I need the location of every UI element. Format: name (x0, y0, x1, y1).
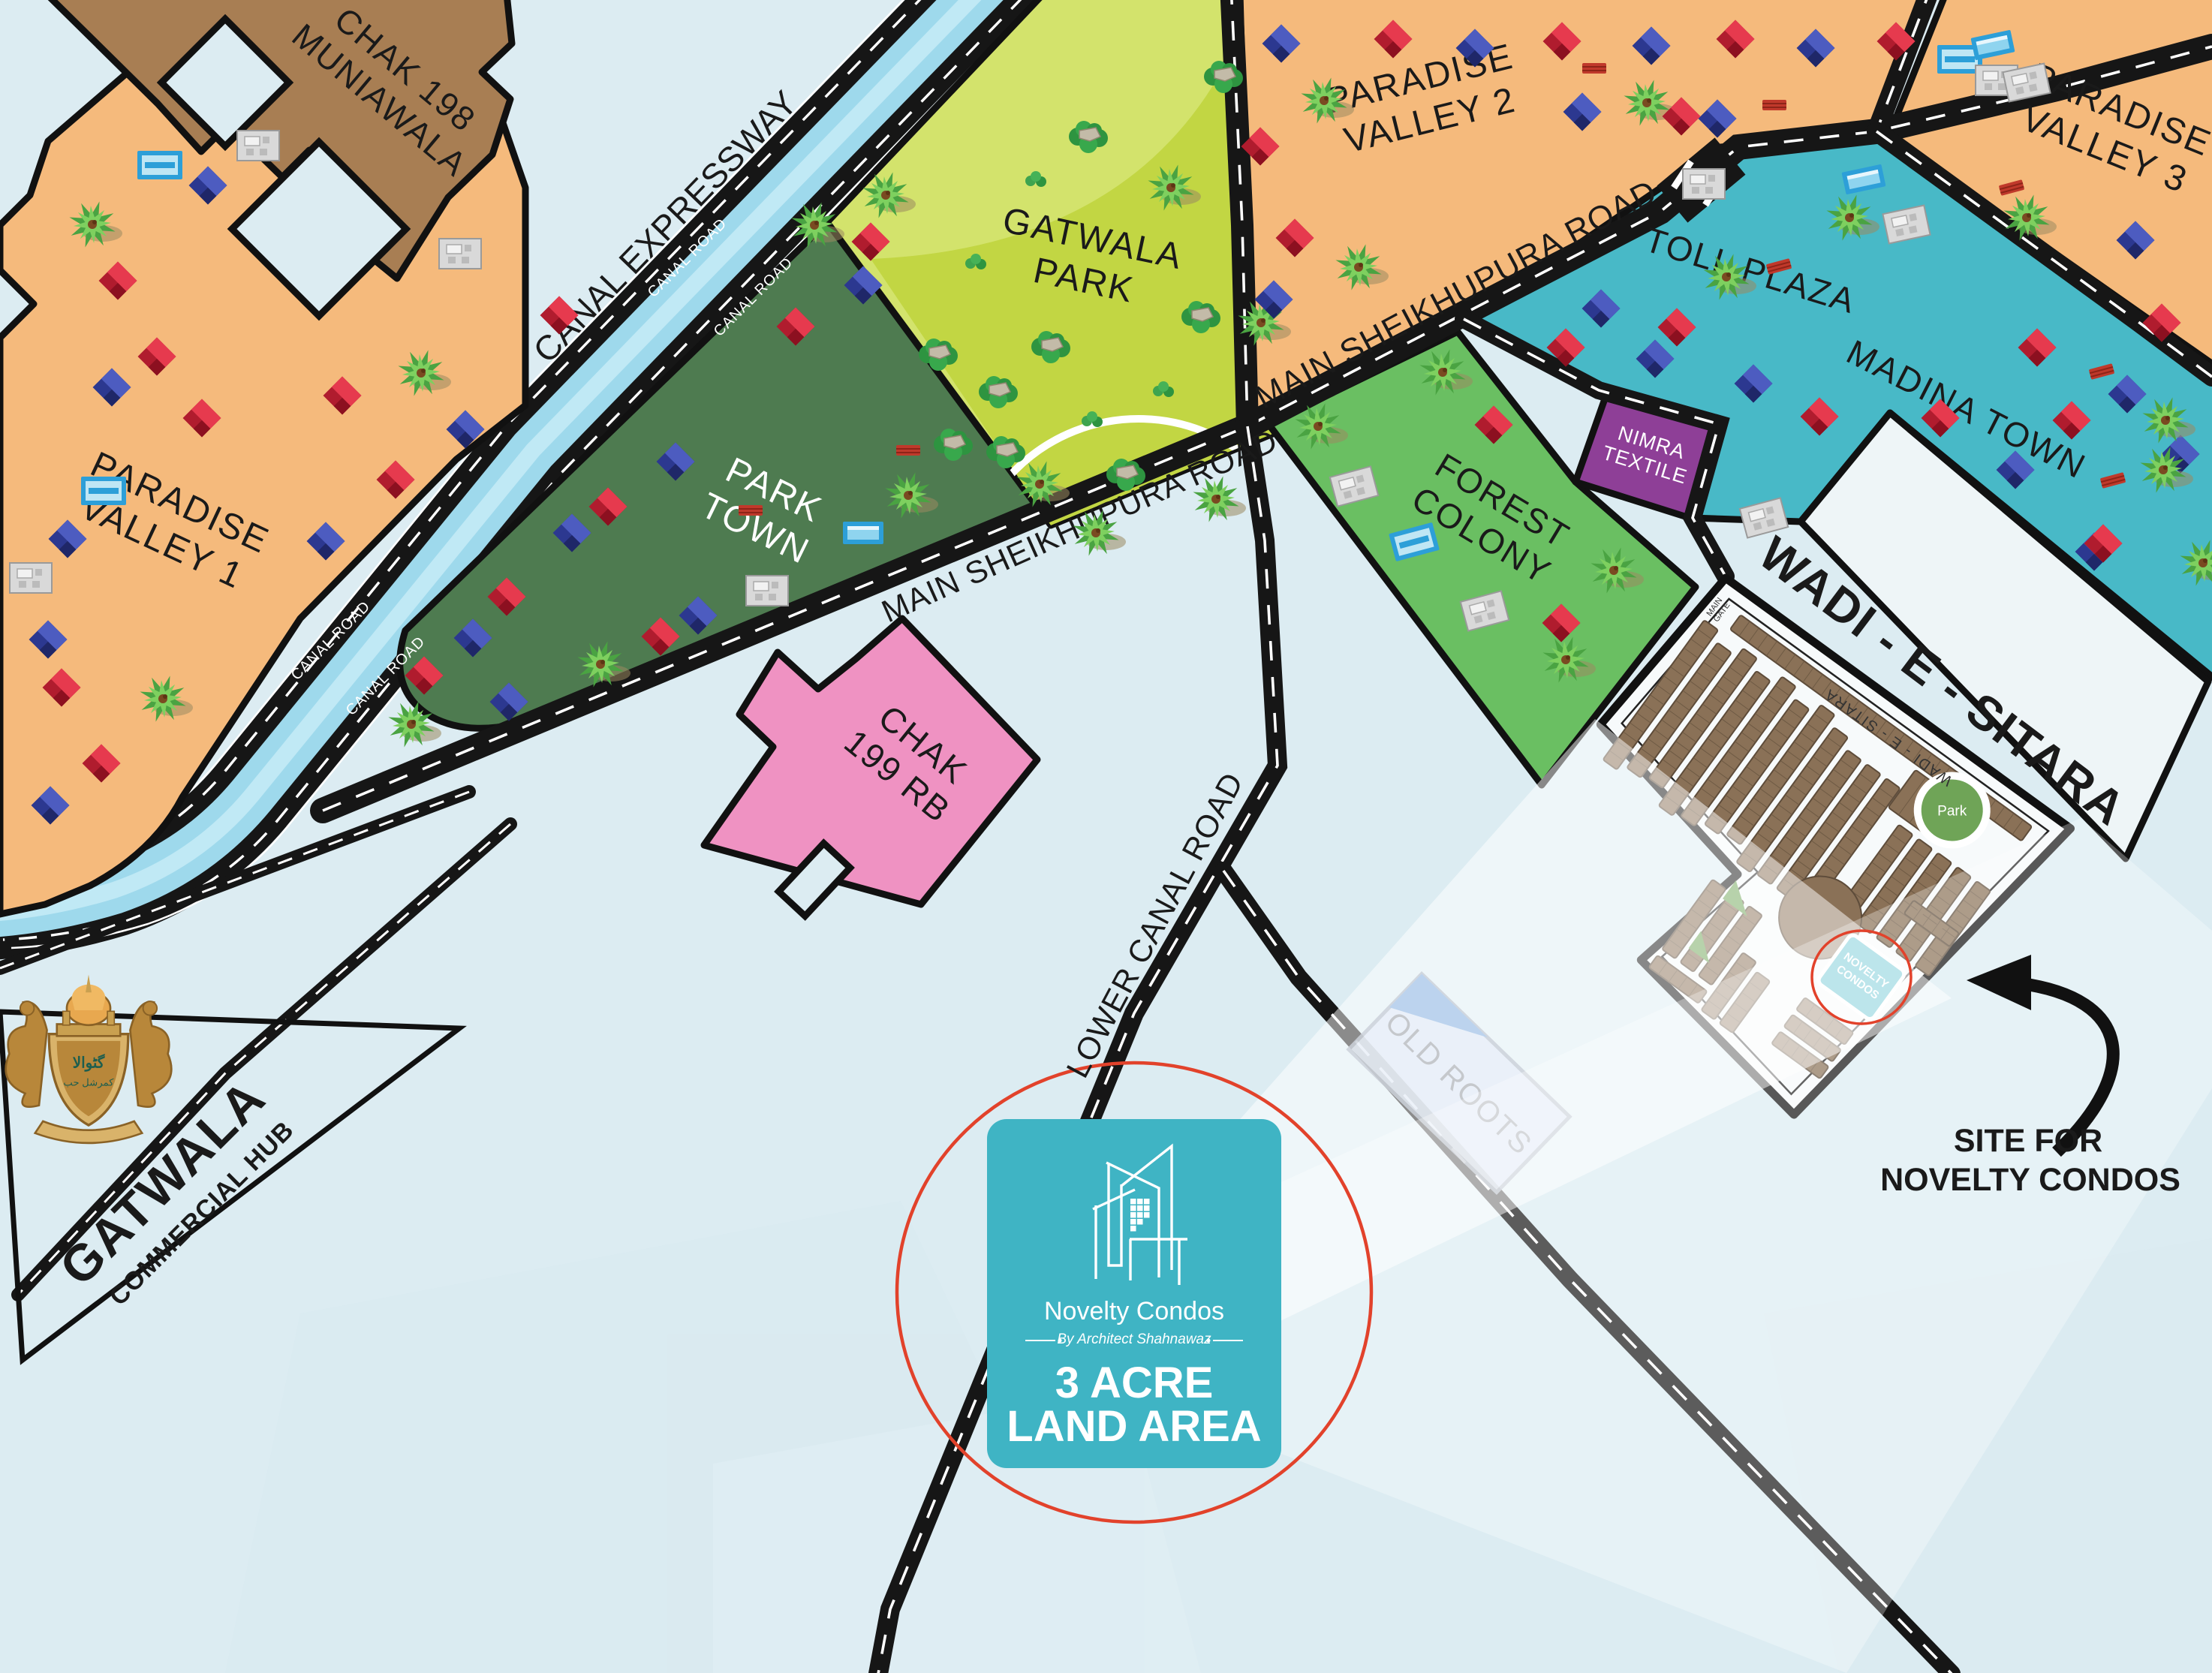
svg-text:SITE FOR: SITE FOR (1954, 1123, 2102, 1159)
svg-text:کمرشل حب: کمرشل حب (64, 1076, 115, 1088)
svg-text:Park: Park (1937, 803, 1967, 819)
svg-text:LAND AREA: LAND AREA (1007, 1402, 1261, 1451)
svg-text:By Architect Shahnawaz: By Architect Shahnawaz (1057, 1331, 1211, 1347)
svg-text:NOVELTY CONDOS: NOVELTY CONDOS (1880, 1162, 2180, 1198)
svg-text:3 ACRE: 3 ACRE (1055, 1359, 1214, 1407)
svg-text:Novelty Condos: Novelty Condos (1044, 1297, 1224, 1325)
svg-text:گٹوالا: گٹوالا (73, 1054, 105, 1073)
